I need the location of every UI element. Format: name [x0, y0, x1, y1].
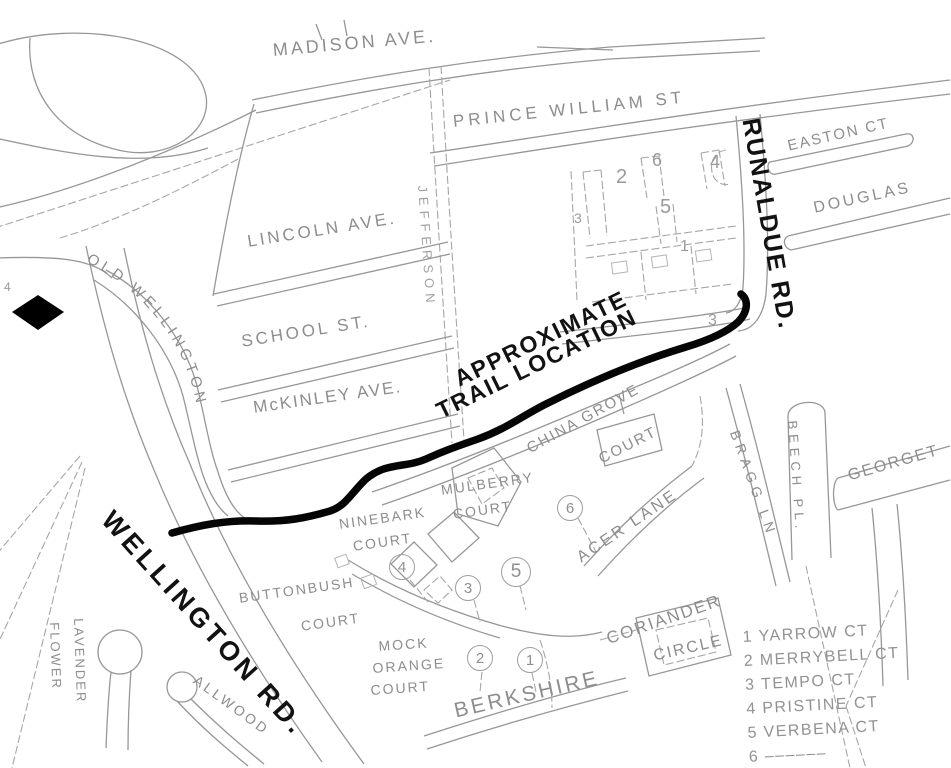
- court-legend: 1YARROW CT 2MERRYBELL CT 3TEMPO CT 4PRIS…: [742, 618, 905, 768]
- road-number-3: 3: [708, 312, 717, 330]
- culdesac-circle-1: 1: [517, 647, 543, 673]
- street-label-lavender: LAVENDER: [71, 618, 89, 704]
- culdesac-circle-5: 5: [501, 557, 531, 587]
- court-number-2: 2: [616, 166, 627, 189]
- diamond-marker: [12, 295, 64, 330]
- lavender-culdesac: [98, 630, 142, 674]
- court-number-5: 5: [660, 196, 671, 219]
- court-number-3: 3: [574, 210, 582, 226]
- marker-number-4: 4: [4, 280, 11, 294]
- culdesac-circle-3: 3: [455, 575, 481, 601]
- street-label-flower: FLOWER: [47, 622, 64, 690]
- court-number-1: 1: [680, 238, 689, 256]
- old-wellington-road: [106, 270, 248, 520]
- culdesac-circle-6: 6: [557, 495, 583, 521]
- court-number-4: 4: [710, 152, 720, 173]
- culdesac-circle-2: 2: [467, 645, 493, 671]
- culdesac-circle-4: 4: [389, 554, 415, 580]
- street-label-old-wellington: OLD WELLINGTON: [84, 250, 210, 408]
- court-number-6: 6: [652, 150, 662, 171]
- interchange-loop: [0, 33, 207, 153]
- scanned-trail-map: OLD WELLINGTON MADISON AVE. PRINCE WILLI…: [0, 0, 951, 768]
